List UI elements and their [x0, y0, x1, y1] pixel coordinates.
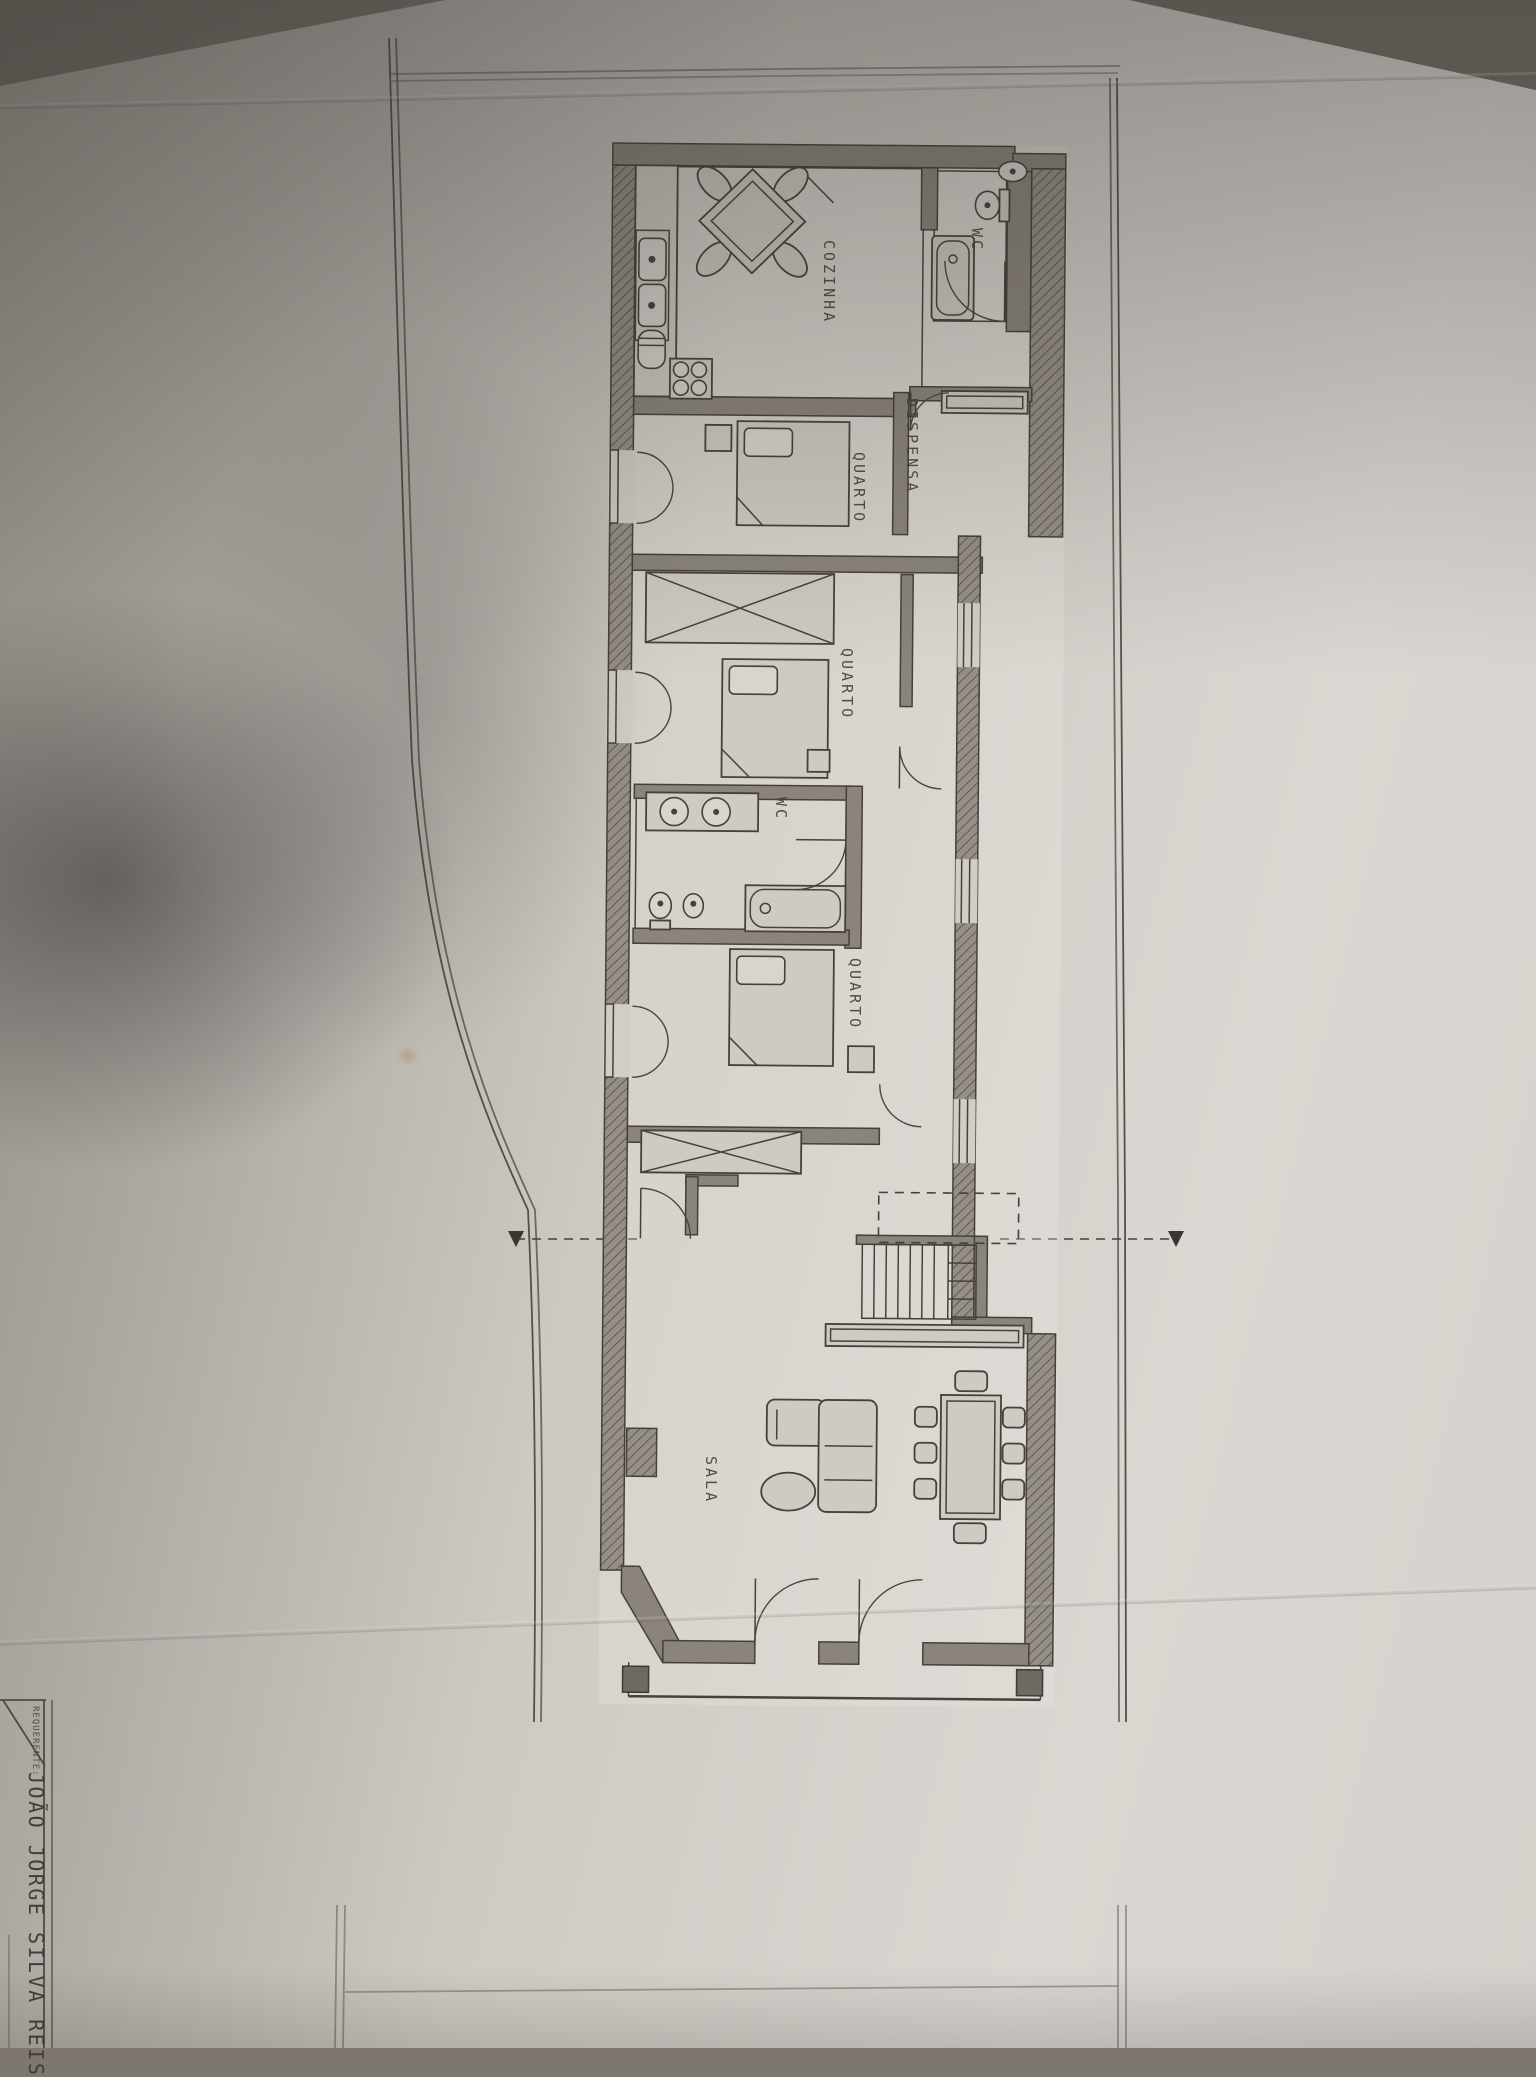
title-block-field-label: REQUERENTE:	[30, 1706, 40, 1777]
room-label-bedroom-2: QUARTO	[838, 648, 856, 720]
wardrobe-1	[646, 572, 835, 644]
room-label-pantry: DISPENSA	[903, 398, 921, 494]
room-label-bedroom-1: QUARTO	[850, 452, 868, 524]
floor-plan	[597, 142, 1068, 1708]
room-label-bedroom-3: QUARTO	[846, 958, 864, 1030]
pantry-shelf	[942, 391, 1028, 414]
nightstand	[848, 1046, 874, 1072]
photographed-floor-plan: COZINHA WC DISPENSA QUARTO QUARTO WC QUA…	[0, 0, 1536, 2048]
kitchen-table-and-chairs	[690, 160, 814, 283]
room-label-wc-middle: WC	[772, 797, 790, 821]
sofa-icon	[767, 1399, 825, 1446]
coffee-table-icon	[761, 1472, 815, 1510]
pillow	[744, 428, 792, 456]
sofa-icon	[818, 1400, 877, 1513]
pillow	[729, 666, 777, 694]
room-label-wc-top: WC	[968, 228, 986, 252]
nightstand	[807, 750, 829, 772]
wardrobe-2	[641, 1130, 801, 1173]
pillow	[737, 956, 785, 984]
room-label-living-room: SALA	[702, 1456, 720, 1504]
nightstand	[705, 425, 731, 451]
room-label-kitchen: COZINHA	[820, 240, 838, 324]
sideboard	[825, 1324, 1023, 1348]
fireplace-block	[626, 1428, 656, 1476]
terrace-pillar	[622, 1666, 648, 1692]
drawing-linework	[0, 0, 1536, 2048]
terrace-pillar	[1016, 1670, 1042, 1696]
title-block-applicant-name: JOÃO JORGE SILVA REIS	[24, 1772, 48, 2077]
dining-table-icon	[940, 1395, 1001, 1520]
section-arrow-right	[1168, 1231, 1184, 1247]
